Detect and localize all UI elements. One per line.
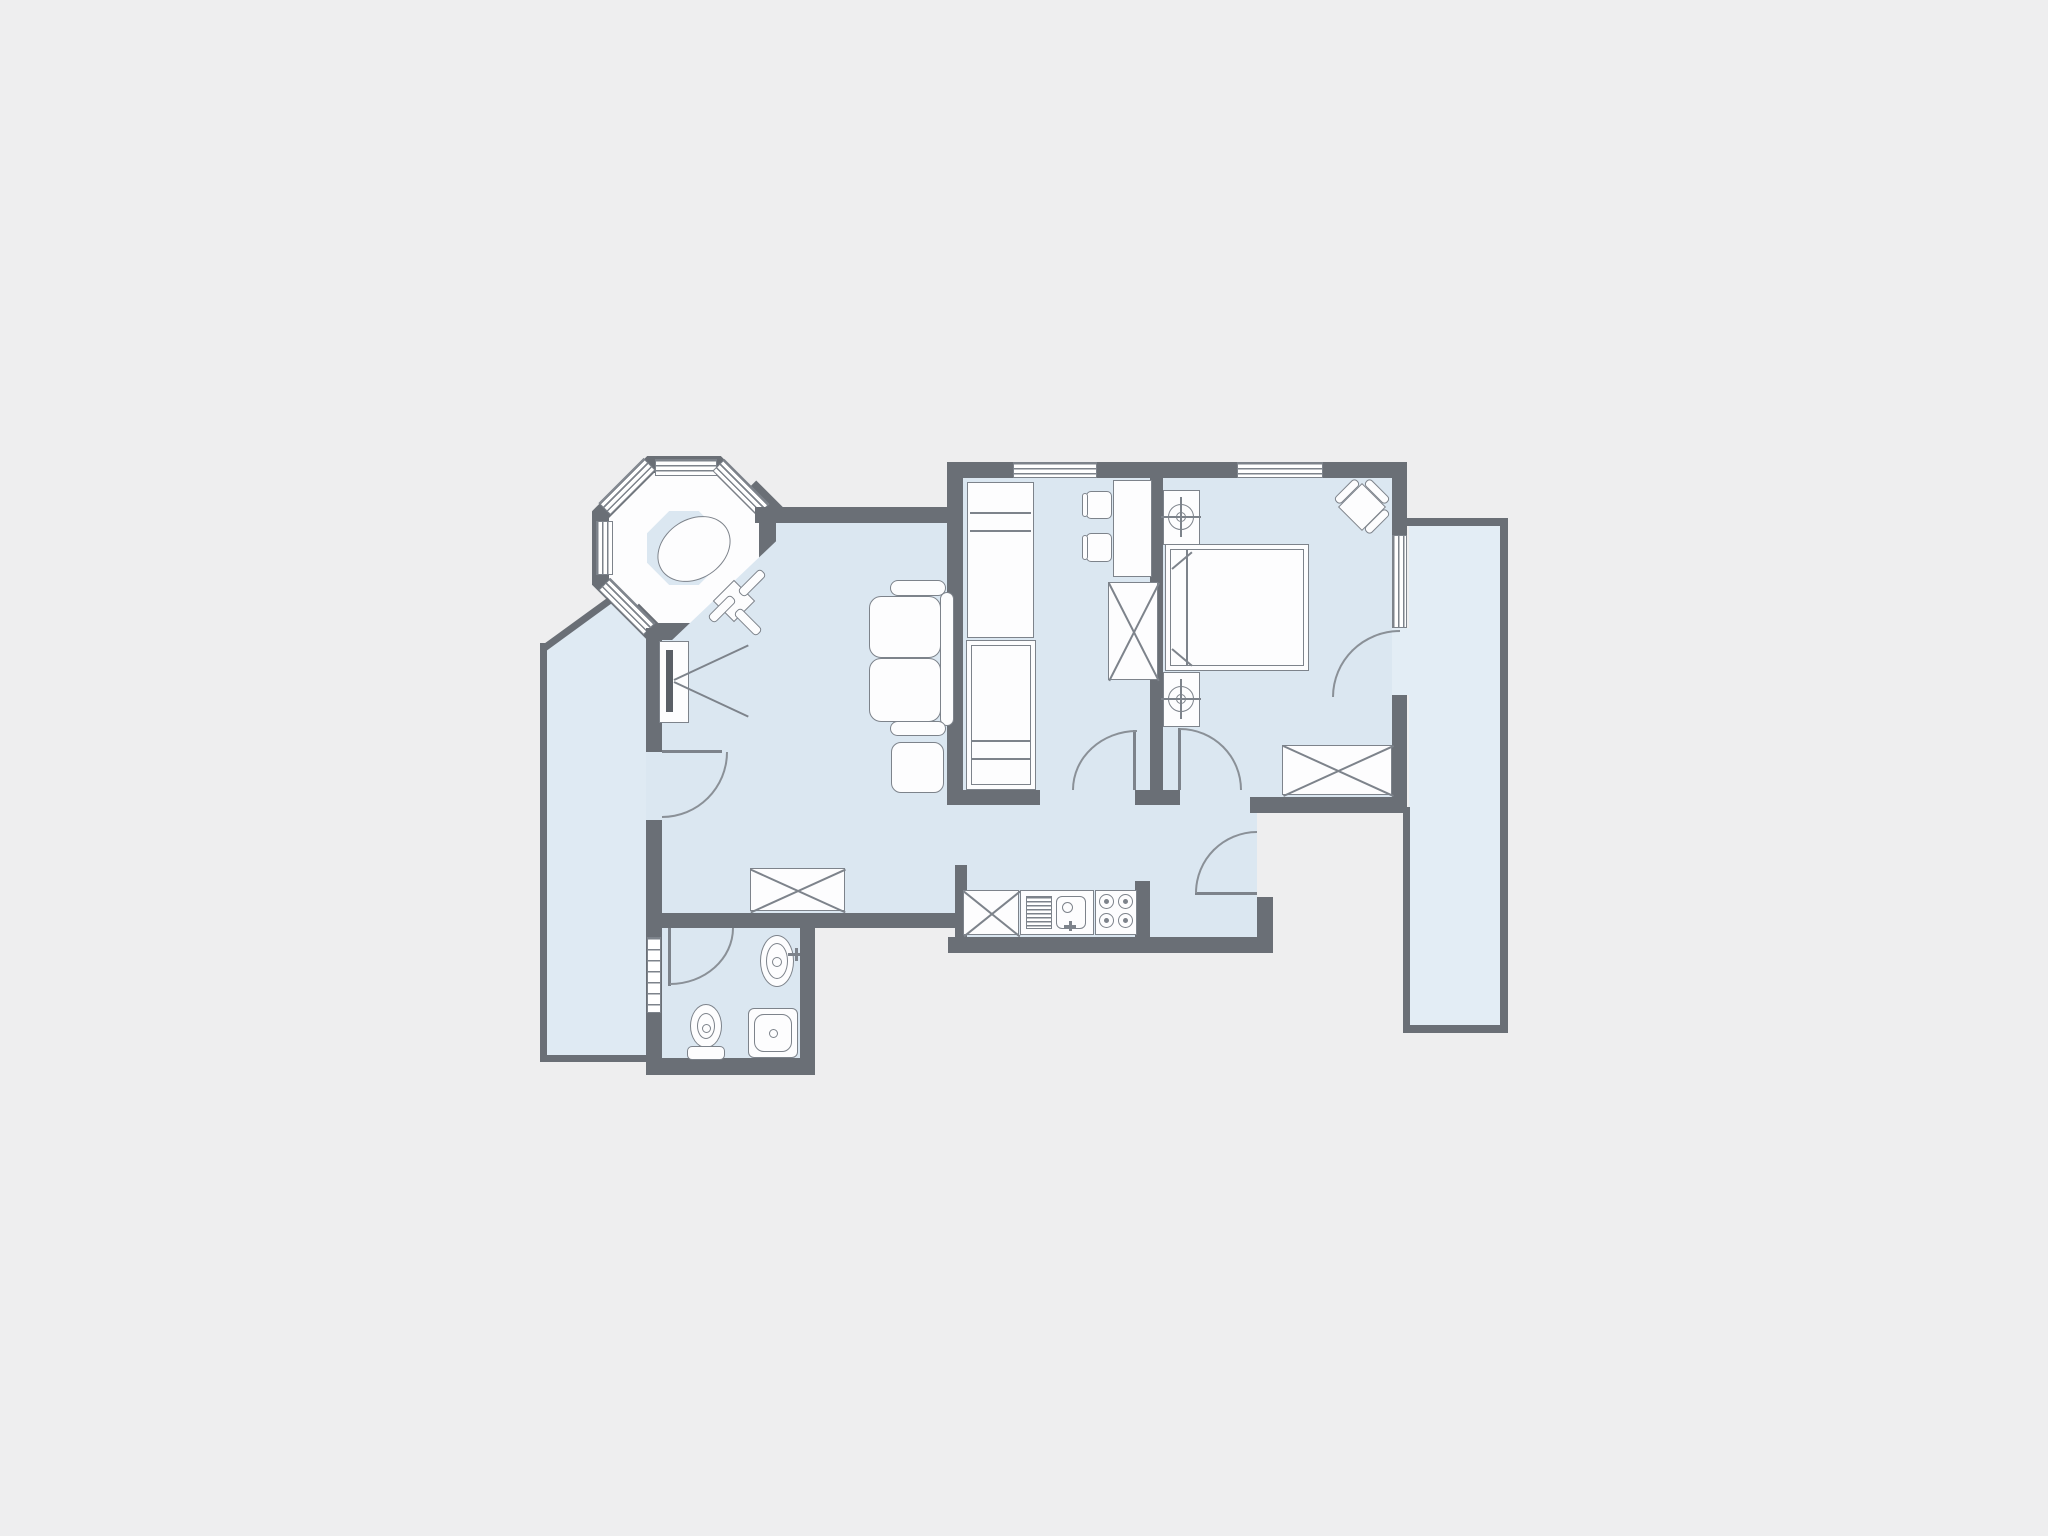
hall-wardrobe (750, 868, 845, 911)
balcony-wall-right (1500, 518, 1508, 1032)
burner-4-dot (1123, 918, 1128, 923)
middle-wardrobe (1108, 582, 1158, 680)
wall-bedroom-east-upper (1392, 478, 1407, 535)
wall-bedroom-south (1250, 797, 1407, 813)
shower-drain (769, 1029, 778, 1038)
balcony-wall-left (1403, 807, 1410, 1033)
kitchen-drainer (1026, 896, 1052, 929)
middle-cabinet-shelf-2 (972, 758, 1030, 760)
kitchen-cupboard (963, 890, 1019, 935)
lightwell-wall-south (540, 1055, 646, 1062)
lamp-1-inner (1176, 512, 1186, 522)
sofa-backrest (940, 592, 954, 726)
window-middle-room (1013, 462, 1097, 478)
middle-cabinet-inner (971, 645, 1031, 785)
lightwell-wall-west (540, 643, 547, 1062)
toilet-dot (702, 1024, 711, 1033)
bathroom-lightwell-window (647, 937, 661, 1013)
floor-lightwell (546, 597, 646, 1055)
bay-window-west (596, 521, 613, 575)
single-bed-pillow-line-1 (970, 512, 1031, 514)
balcony-wall-bottom (1403, 1025, 1508, 1033)
sofa-cushion-1 (869, 596, 941, 658)
balcony-door-glazing (1392, 535, 1407, 628)
kitchen-tap-2 (1069, 921, 1072, 931)
wall-bathroom-south (646, 1058, 815, 1075)
wall-middle-room-south (955, 790, 1040, 805)
wall-living-top (755, 507, 963, 523)
wall-south-stub (1135, 790, 1180, 805)
desk-chair-2-seat (1086, 533, 1112, 562)
sofa-armrest-south (890, 721, 946, 736)
burner-2-dot (1123, 899, 1128, 904)
toilet-cistern (687, 1046, 725, 1060)
floor-balcony (1409, 525, 1500, 1025)
desk-chair-2-backrest (1082, 535, 1088, 560)
bath-sink-dot (772, 957, 782, 967)
desk-chair-1-seat (1086, 491, 1112, 519)
bay-window-north (655, 459, 717, 476)
wall-bathroom-top (646, 913, 957, 928)
single-bed (967, 482, 1034, 638)
double-bed-headboard-line (1186, 549, 1188, 666)
kitchen-sink-dot (1062, 902, 1073, 913)
wall-living-west-lower (646, 820, 662, 928)
sofa-ottoman (891, 742, 944, 793)
double-bed-inner (1170, 549, 1304, 666)
bath-tap-2 (795, 948, 798, 961)
burner-1-dot (1104, 899, 1109, 904)
sofa-armrest-north (890, 580, 946, 596)
window-bedroom (1237, 462, 1323, 478)
burner-3-dot (1104, 918, 1109, 923)
bedroom-wardrobe (1282, 745, 1392, 795)
wall-kitchen-right-stub (1135, 881, 1150, 953)
sofa-cushion-2 (869, 658, 941, 722)
desk-chair-1-backrest (1082, 493, 1088, 517)
middle-desk (1113, 480, 1152, 577)
wall-bathroom-east (800, 928, 815, 1075)
bath-tap-1 (788, 953, 800, 956)
tv-screen (666, 650, 673, 712)
middle-cabinet-shelf-1 (972, 740, 1030, 742)
wall-bedroom-east-lower (1392, 695, 1407, 807)
floor-plan (0, 0, 2048, 1536)
balcony-wall-top (1407, 518, 1507, 526)
single-bed-pillow-line-2 (970, 530, 1031, 532)
lamp-2-inner (1176, 694, 1186, 704)
wall-kitchen-south (948, 937, 1273, 953)
